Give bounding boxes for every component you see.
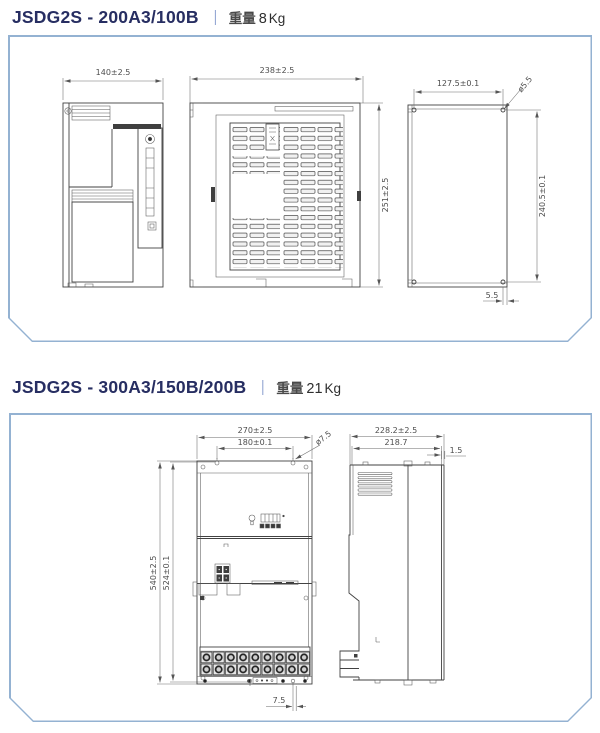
dim-hole-pitch-width: 180±0.1 — [238, 438, 273, 447]
datasheet-page: { "colors": { "model_text": "#272e62", "… — [0, 0, 600, 733]
weight-value: 21 — [306, 381, 322, 397]
hole-dia-leader — [505, 89, 522, 109]
weight-unit: Kg — [269, 11, 286, 26]
dim-lines-hole-pitch-height — [506, 110, 541, 282]
dim-front-width: 270±2.5 — [238, 426, 273, 435]
dim-front-width: 238±2.5 — [260, 66, 295, 75]
dim-side-width: 140±2.5 — [96, 68, 131, 77]
section2-side-view-drawing: 228.2±2.5 218.7 1.5 — [330, 423, 470, 693]
section2-front-view-drawing: 270±2.5 180±0.1 ø7.5 540±2.5 524±0.1 — [148, 423, 338, 716]
weight-label: 重量 — [276, 377, 303, 397]
section2-title: JSDG2S - 300A3/150B/200B ｜ 重量 21 Kg — [12, 377, 341, 398]
warning-label — [266, 124, 279, 150]
keypad-display — [249, 514, 284, 528]
section1-title: JSDG2S - 200A3/100B ｜ 重量 8 Kg — [12, 7, 285, 28]
section2-model-name: JSDG2S - 300A3/150B/200B — [12, 377, 246, 398]
front-view-body — [193, 458, 316, 686]
dim-hole-pitch-height: 240.5±0.1 — [538, 175, 547, 217]
weight-value: 8 — [259, 11, 267, 27]
dim-lip: 1.5 — [450, 446, 463, 455]
dim-inner-depth: 218.7 — [385, 438, 408, 447]
dim-lines-hole-pitch-width — [414, 89, 503, 107]
dim-front-height: 251±2.5 — [381, 178, 390, 213]
dim-hole-diameter: ø5.5 — [516, 75, 534, 94]
dim-lines-width — [190, 76, 363, 103]
dim-depth: 228.2±2.5 — [375, 426, 417, 435]
mounting-plate-body — [408, 105, 507, 287]
dim-hole-pitch-width: 127.5±0.1 — [437, 79, 479, 88]
section1-model-name: JSDG2S - 200A3/100B — [12, 7, 199, 28]
title-separator: ｜ — [255, 377, 270, 398]
section1-mounting-plate-drawing: 127.5±0.1 ø5.5 240.5±0.1 5.5 — [395, 65, 595, 315]
encoder-connector — [215, 564, 230, 583]
dim-lines-height — [360, 103, 383, 287]
section1-front-view-drawing: 238±2.5 251±2.5 — [180, 60, 405, 295]
vent-slots — [358, 473, 392, 496]
weight-unit: Kg — [325, 381, 342, 396]
weight-label: 重量 — [229, 7, 256, 27]
terminal-block — [200, 647, 310, 676]
dim-bottom-offset: 7.5 — [273, 696, 286, 705]
section1-side-view-drawing: 140±2.5 — [55, 62, 185, 292]
dim-front-height: 540±2.5 — [149, 556, 158, 591]
dim-hole-pitch-height: 524±0.1 — [162, 556, 171, 591]
side-view-body — [340, 461, 444, 685]
side-view-body — [63, 103, 163, 287]
dim-lines-width — [63, 78, 163, 100]
front-view-body — [190, 103, 361, 287]
title-separator: ｜ — [208, 7, 223, 28]
dim-edge-offset: 5.5 — [486, 291, 499, 300]
